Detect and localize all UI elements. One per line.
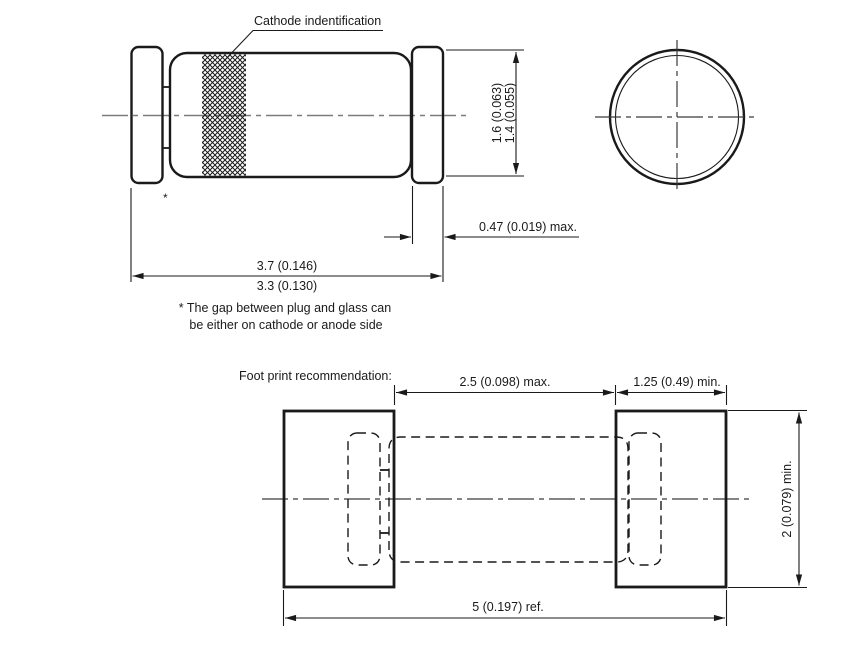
side-view: * Cathode indentification 1.6 (0.063) 1.…	[102, 14, 579, 332]
dim-body-length-max-label: 3.7 (0.146)	[257, 259, 317, 273]
dim-diameter-min-label: 1.4 (0.055)	[503, 83, 517, 143]
dim-overall-label: 5 (0.197) ref.	[472, 600, 544, 614]
dim-overall-length: 5 (0.197) ref.	[284, 590, 727, 626]
footprint-title: Foot print recommendation:	[239, 369, 392, 383]
gap-note: * The gap between plug and glass can be …	[179, 301, 391, 332]
gap-note-line2: be either on cathode or anode side	[189, 318, 382, 332]
cathode-leader-line	[222, 31, 383, 64]
dim-diameter-max-label: 1.6 (0.063)	[490, 83, 504, 143]
dim-body-length: 3.7 (0.146) 3.3 (0.130)	[131, 188, 442, 293]
cathode-band	[202, 55, 246, 176]
dim-cap-length: 0.47 (0.019) max.	[384, 186, 579, 282]
gap-note-line1: * The gap between plug and glass can	[179, 301, 391, 315]
dim-pad-gap: 2.5 (0.098) max.	[395, 375, 616, 405]
dim-pad-gap-label: 2.5 (0.098) max.	[459, 375, 550, 389]
end-view	[595, 40, 758, 194]
dim-pad-height-label: 2 (0.079) min.	[780, 460, 794, 537]
dim-body-length-min-label: 3.3 (0.130)	[257, 279, 317, 293]
technical-drawing-canvas: * Cathode indentification 1.6 (0.063) 1.…	[0, 0, 862, 654]
dim-cap-length-label: 0.47 (0.019) max.	[479, 220, 577, 234]
dim-pad-width-label: 1.25 (0.49) min.	[633, 375, 721, 389]
dim-pad-height: 2 (0.079) min.	[728, 411, 807, 588]
package-dimension-drawing: * Cathode indentification 1.6 (0.063) 1.…	[0, 0, 862, 654]
dim-diameter: 1.6 (0.063) 1.4 (0.055)	[446, 50, 524, 176]
gap-asterisk: *	[163, 191, 168, 205]
cathode-label: Cathode indentification	[254, 14, 381, 28]
dim-pad-width: 1.25 (0.49) min.	[617, 375, 727, 405]
footprint-view: Foot print recommendation: 2.5 (0.098) m…	[239, 369, 807, 626]
